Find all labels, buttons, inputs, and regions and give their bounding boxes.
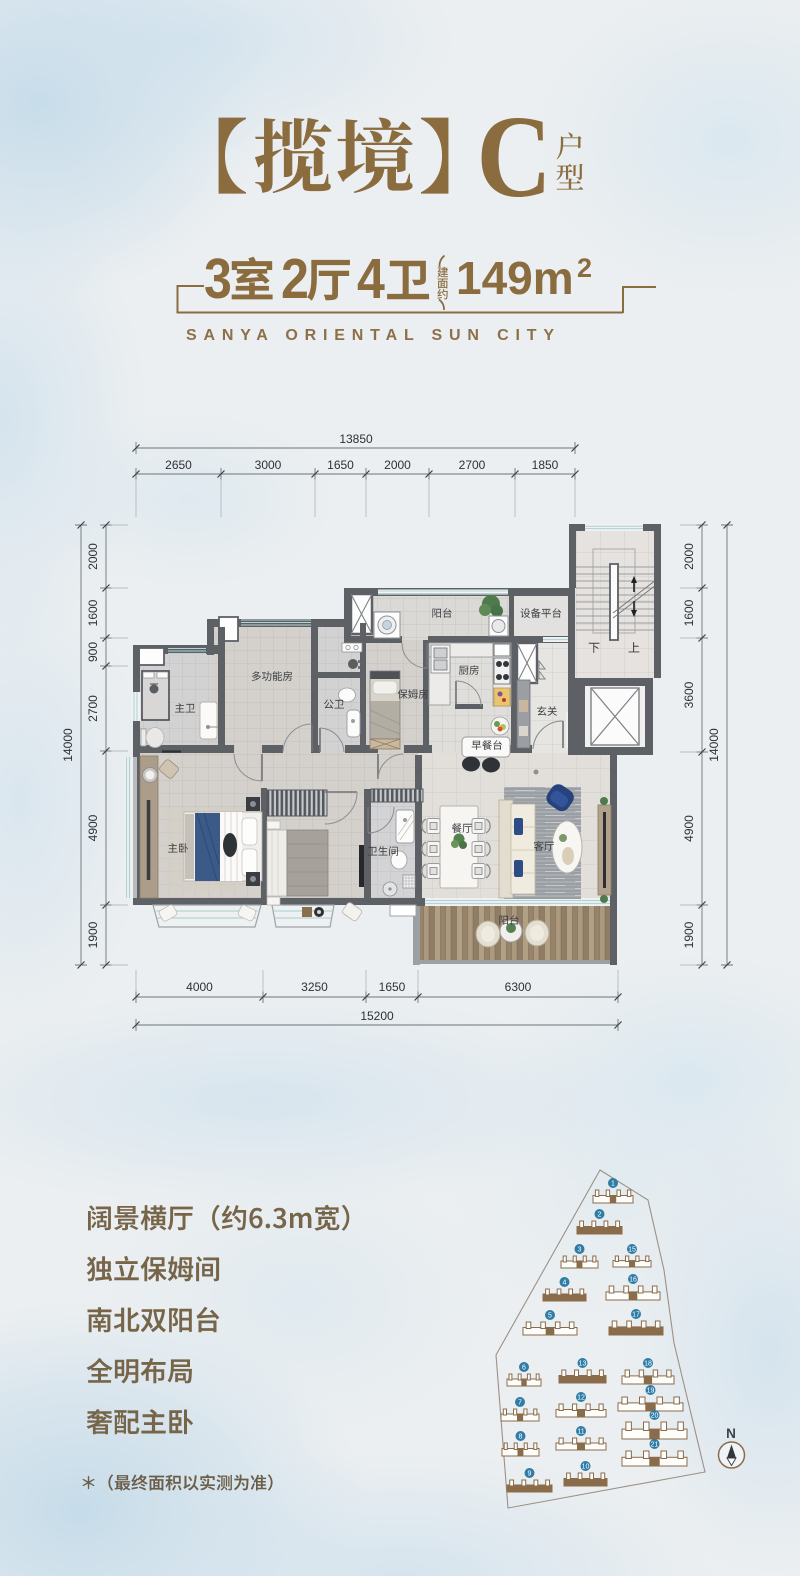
svg-text:17: 17 <box>632 1312 640 1319</box>
svg-text:2: 2 <box>281 247 309 311</box>
svg-text:1600: 1600 <box>682 599 696 626</box>
svg-text:10: 10 <box>582 1464 590 1471</box>
svg-text:13850: 13850 <box>339 432 373 446</box>
svg-text:15: 15 <box>628 1247 636 1254</box>
svg-text:N: N <box>726 1426 736 1441</box>
svg-text:4900: 4900 <box>86 814 100 841</box>
svg-text:3: 3 <box>204 247 232 311</box>
svg-text:3250: 3250 <box>301 980 328 994</box>
svg-text:2000: 2000 <box>384 458 411 472</box>
svg-text:4: 4 <box>563 1280 567 1287</box>
svg-text:1600: 1600 <box>86 599 100 626</box>
svg-text:2: 2 <box>577 253 592 283</box>
svg-text:2700: 2700 <box>86 695 100 722</box>
svg-text:12: 12 <box>577 1395 585 1402</box>
svg-text:2650: 2650 <box>165 458 192 472</box>
svg-text:3: 3 <box>578 1247 582 1254</box>
svg-text:4: 4 <box>357 247 385 311</box>
svg-text:3000: 3000 <box>255 458 282 472</box>
svg-text:3600: 3600 <box>682 681 696 708</box>
svg-text:1: 1 <box>611 1181 615 1188</box>
svg-text:13: 13 <box>579 1361 587 1368</box>
svg-text:19: 19 <box>647 1388 655 1395</box>
svg-text:2000: 2000 <box>86 543 100 570</box>
svg-text:1900: 1900 <box>682 921 696 948</box>
svg-text:1650: 1650 <box>379 980 406 994</box>
svg-text:14000: 14000 <box>707 728 721 762</box>
svg-text:20: 20 <box>651 1413 659 1420</box>
svg-text:C: C <box>477 92 552 222</box>
svg-text:4000: 4000 <box>186 980 213 994</box>
svg-text:16: 16 <box>629 1277 637 1284</box>
svg-text:18: 18 <box>644 1361 652 1368</box>
svg-text:5: 5 <box>548 1313 552 1320</box>
svg-text:SANYA ORIENTAL SUN CITY: SANYA ORIENTAL SUN CITY <box>186 327 554 344</box>
svg-text:2: 2 <box>598 1212 602 1219</box>
svg-text:6300: 6300 <box>505 980 532 994</box>
svg-text:1900: 1900 <box>86 921 100 948</box>
svg-text:21: 21 <box>651 1442 659 1449</box>
svg-text:11: 11 <box>577 1429 584 1436</box>
svg-text:7: 7 <box>518 1400 522 1407</box>
svg-text:2000: 2000 <box>682 543 696 570</box>
svg-text:1850: 1850 <box>532 458 559 472</box>
svg-text:149m: 149m <box>456 252 574 304</box>
svg-text:4900: 4900 <box>682 815 696 842</box>
svg-text:2700: 2700 <box>459 458 486 472</box>
svg-text:15200: 15200 <box>360 1009 394 1023</box>
svg-text:9: 9 <box>528 1471 532 1478</box>
svg-text:8: 8 <box>519 1434 523 1441</box>
svg-text:1650: 1650 <box>327 458 354 472</box>
svg-text:6: 6 <box>522 1365 526 1372</box>
svg-text:14000: 14000 <box>61 728 75 762</box>
svg-text:900: 900 <box>86 642 100 662</box>
